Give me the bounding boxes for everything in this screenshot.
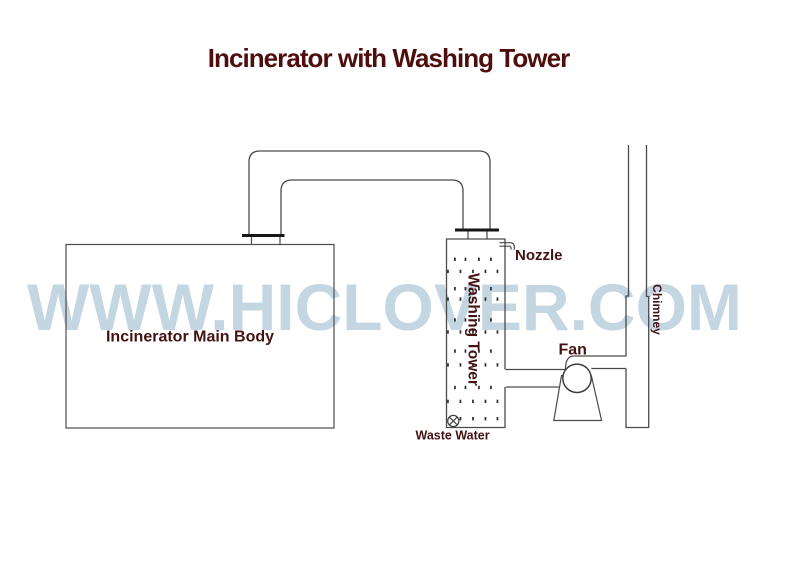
svg-text:Incinerator Main Body: Incinerator Main Body (106, 329, 274, 346)
svg-text:Chimney: Chimney (650, 284, 664, 335)
svg-text:Incinerator with Washing Tower: Incinerator with Washing Tower (208, 43, 570, 73)
svg-text:Washing Tower: Washing Tower (465, 273, 482, 386)
svg-text:Fan: Fan (559, 342, 587, 359)
svg-text:Nozzle: Nozzle (515, 247, 563, 264)
svg-text:Waste Water: Waste Water (416, 429, 490, 443)
